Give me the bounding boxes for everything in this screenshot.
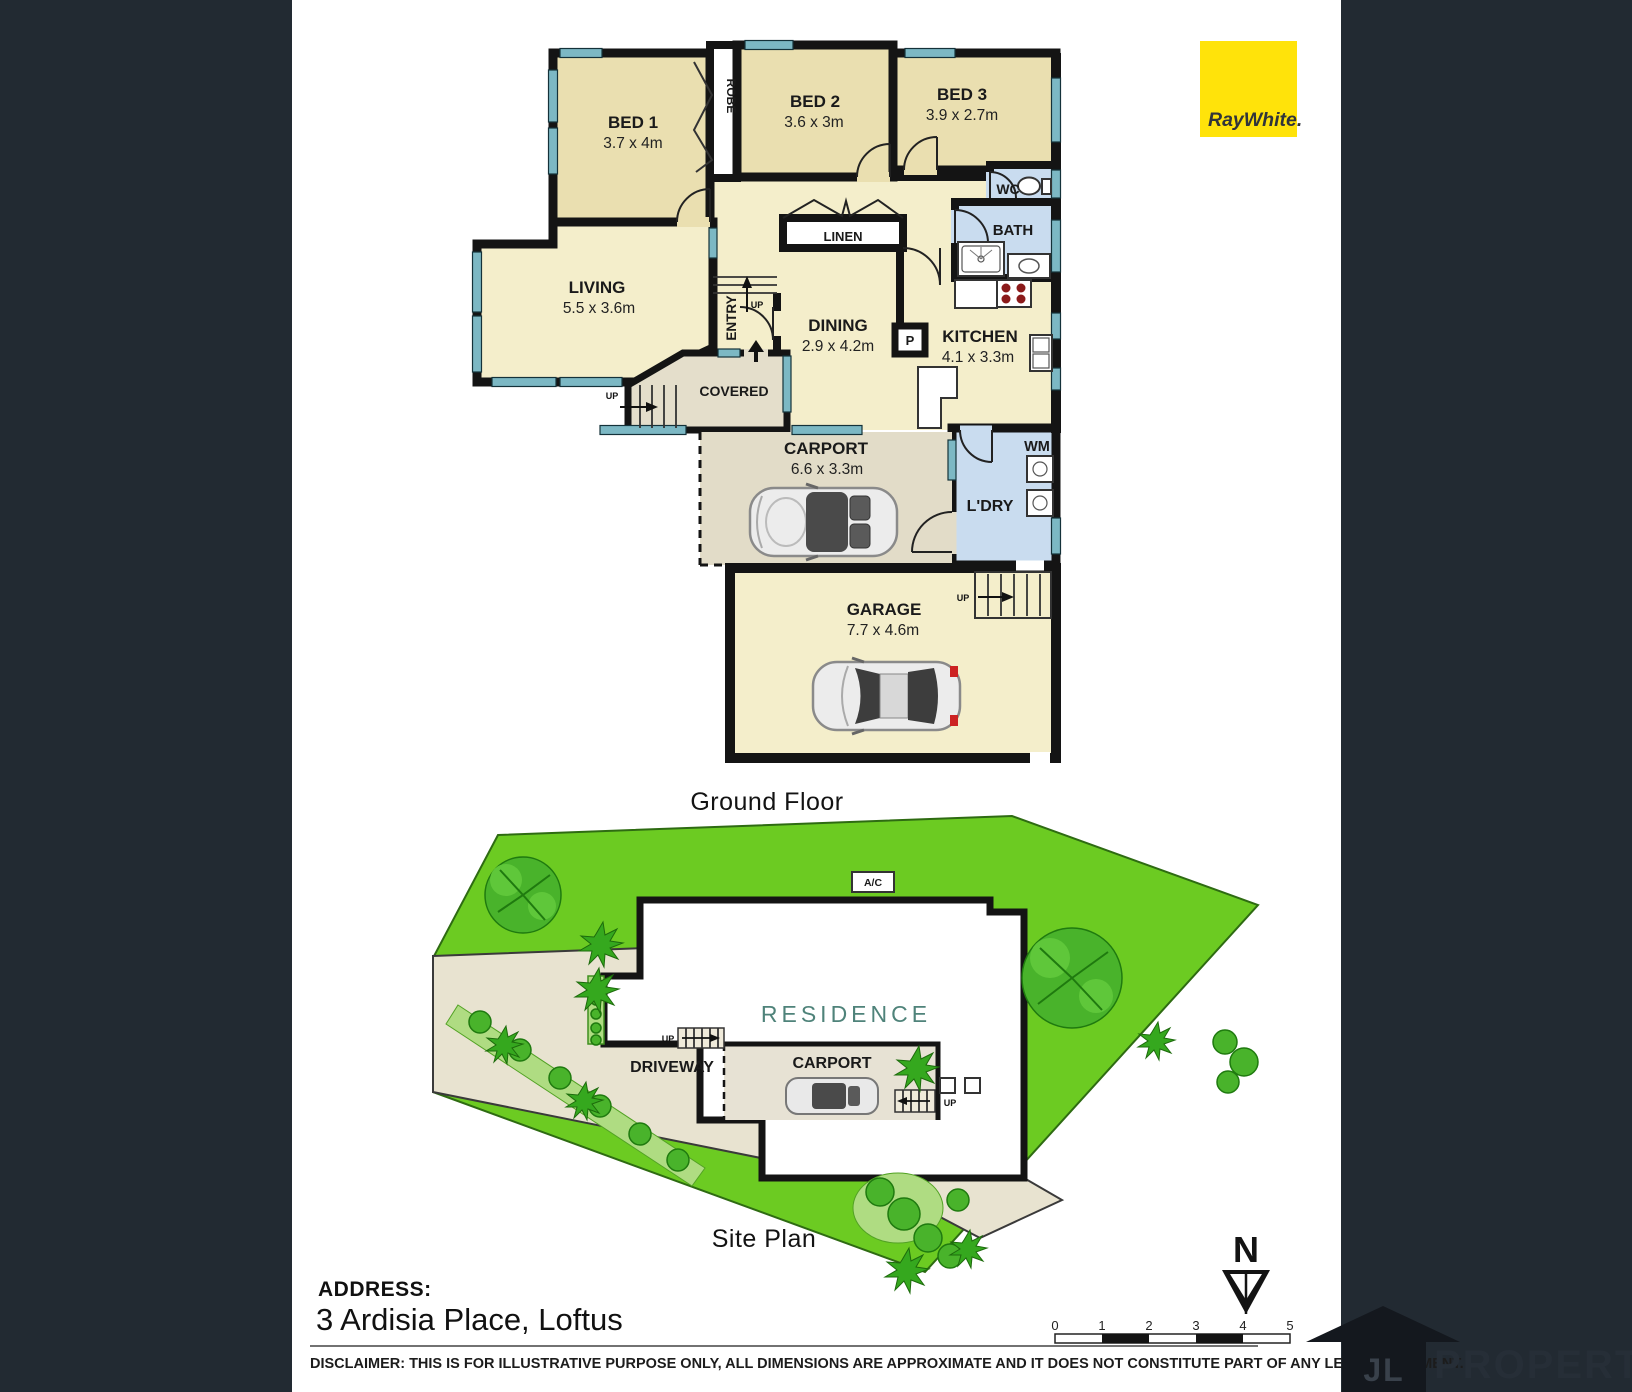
linen-label: LINEN — [824, 229, 863, 244]
wm-label: WM — [1024, 439, 1050, 455]
dining-dims: 2.9 x 4.2m — [802, 338, 874, 355]
bath-sink-icon — [1008, 254, 1050, 278]
up-label-entry: UP — [751, 300, 764, 310]
address-label: ADDRESS: — [318, 1278, 432, 1301]
toilet-tank-icon — [1042, 179, 1051, 194]
bath-label: BATH — [993, 222, 1034, 239]
bed3-label: BED 3 — [937, 85, 987, 104]
kitchen-dims: 4.1 x 3.3m — [942, 349, 1014, 366]
bed3-dims: 3.9 x 2.7m — [926, 107, 998, 124]
entry-label: ENTRY — [724, 295, 739, 340]
site-plan-title: Site Plan — [712, 1225, 817, 1253]
garage-dims: 7.7 x 4.6m — [847, 622, 919, 639]
robe-label: ROBE — [724, 79, 738, 114]
entry-wall-b — [773, 336, 781, 354]
carport-car-icon — [750, 484, 897, 560]
scale-tick-4: 4 — [1239, 1318, 1246, 1333]
disclaimer-text: DISCLAIMER: THIS IS FOR ILLUSTRATIVE PUR… — [310, 1356, 1464, 1372]
ground-floor-title: Ground Floor — [690, 788, 843, 816]
living-label: LIVING — [569, 278, 626, 297]
scale-tick-0: 0 — [1051, 1318, 1058, 1333]
up-label-garage: UP — [957, 593, 970, 603]
kitchen-label: KITCHEN — [942, 327, 1018, 346]
laundry-label: L'DRY — [967, 498, 1014, 515]
tree-left — [485, 857, 561, 933]
garage-label: GARAGE — [847, 600, 922, 619]
ac-label: A/C — [864, 877, 883, 889]
paver-square — [940, 1078, 955, 1093]
entry-wall-a — [773, 293, 781, 311]
scale-tick-2: 2 — [1145, 1318, 1152, 1333]
dining-kitchen-wall — [896, 252, 904, 326]
toilet-icon — [1018, 178, 1040, 195]
washing-machine-icon — [1027, 490, 1053, 516]
scale-tick-3: 3 — [1192, 1318, 1199, 1333]
carport-dims: 6.6 x 3.3m — [791, 461, 863, 478]
north-label: N — [1233, 1229, 1259, 1270]
scale-tick-5: 5 — [1286, 1318, 1293, 1333]
scale-tick-1: 1 — [1098, 1318, 1105, 1333]
garage-car-icon — [813, 658, 960, 734]
bed1-dims: 3.7 x 4m — [603, 135, 662, 152]
living-dims: 5.5 x 3.6m — [563, 300, 635, 317]
site-carport-label: CARPORT — [792, 1055, 871, 1072]
dining-label: DINING — [808, 316, 868, 335]
up-label-site-right: UP — [944, 1098, 957, 1108]
bedroom-2 — [737, 45, 893, 177]
pantry-label: P — [906, 333, 915, 348]
up-label-site-left: UP — [662, 1034, 675, 1044]
garage-stairs — [975, 572, 1051, 618]
address-value: 3 Ardisia Place, Loftus — [316, 1302, 623, 1337]
carport-label: CARPORT — [784, 439, 869, 458]
bed2-label: BED 2 — [790, 92, 840, 111]
laundry-tub-icon — [1027, 456, 1053, 482]
kitchen-bench — [955, 280, 997, 308]
jl-letters: JL — [1363, 1352, 1404, 1388]
residence-label: RESIDENCE — [761, 1001, 931, 1027]
covered-label: COVERED — [699, 383, 768, 399]
floorplan-canvas: BED 1 3.7 x 4m BED 2 3.6 x 3m BED 3 3.9 … — [0, 0, 1632, 1392]
floorplan-page: BED 1 3.7 x 4m BED 2 3.6 x 3m BED 3 3.9 … — [0, 0, 1632, 1392]
paver-square — [965, 1078, 980, 1093]
driveway-label: DRIVEWAY — [630, 1059, 714, 1076]
ray-white-logo: RayWhite. — [1200, 41, 1302, 137]
wc-label: WC — [996, 181, 1019, 197]
up-label-porch: UP — [606, 391, 619, 401]
stove-icon — [997, 280, 1031, 307]
ray-white-text: RayWhite. — [1208, 109, 1302, 131]
bed2-dims: 3.6 x 3m — [784, 114, 843, 131]
jl-property-text: PROPERTY — [1434, 1343, 1632, 1387]
tree-right — [1022, 928, 1122, 1028]
bed1-label: BED 1 — [608, 113, 658, 132]
